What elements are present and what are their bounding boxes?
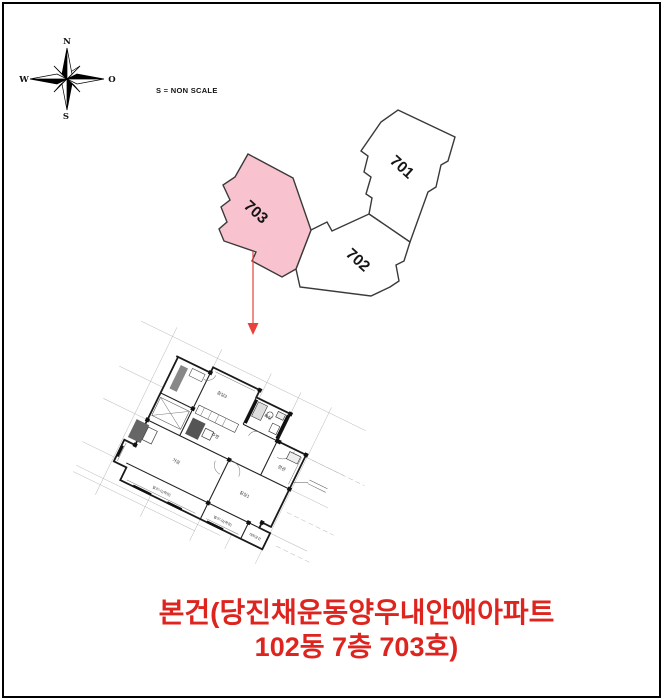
caption-line-2: 102동 7층 703호) [60, 630, 653, 664]
compass-north-label: N [63, 37, 71, 47]
compass-west-label: W [18, 75, 29, 85]
diagram-canvas: N S W O 701 702 703 [0, 0, 663, 700]
annotation-leader [294, 474, 328, 497]
scale-note: S = NON SCALE [156, 86, 218, 95]
site-plan: 701 702 703 [219, 110, 455, 296]
compass-east-label: O [108, 75, 116, 85]
subject-caption: 본건(당진채운동양우내안애아파트 102동 7층 703호) [60, 596, 653, 664]
compass-south-label: S [63, 112, 69, 122]
compass-rose-icon: N S W O [18, 37, 116, 122]
caption-line-1: 본건(당진채운동양우내안애아파트 [60, 596, 653, 630]
document-page: N S W O 701 702 703 [0, 0, 663, 700]
floor-plan: 침실3 욕실 주방 현관 거실 침실1 발코니1(확장) 발코니2(확장) 대피… [64, 312, 391, 599]
